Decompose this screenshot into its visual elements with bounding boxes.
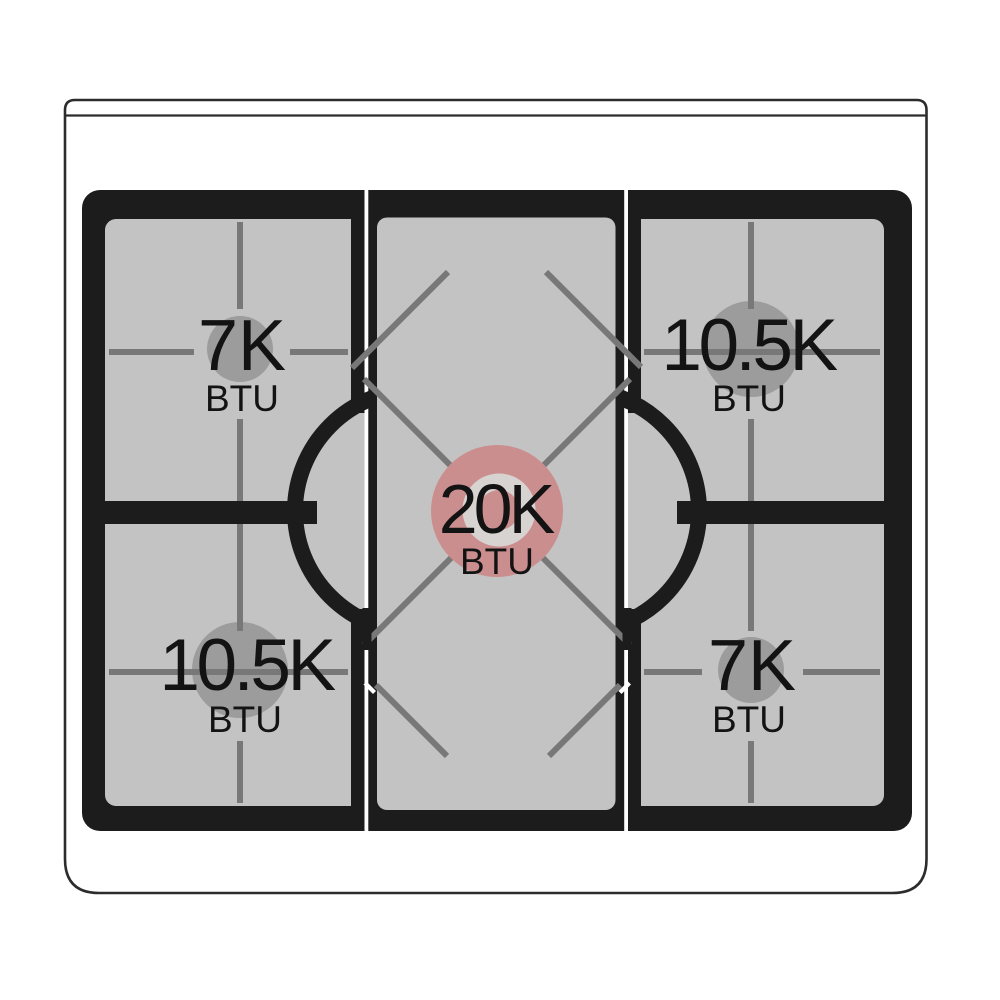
svg-text:BTU: BTU — [460, 541, 534, 582]
svg-text:BTU: BTU — [712, 378, 786, 419]
svg-text:10.5K: 10.5K — [159, 625, 335, 706]
svg-text:10.5K: 10.5K — [661, 305, 837, 386]
svg-text:20K: 20K — [439, 470, 555, 548]
svg-text:7K: 7K — [198, 306, 286, 386]
svg-text:BTU: BTU — [208, 699, 282, 740]
svg-text:BTU: BTU — [712, 699, 786, 740]
svg-text:BTU: BTU — [205, 378, 279, 419]
svg-text:7K: 7K — [708, 626, 796, 706]
